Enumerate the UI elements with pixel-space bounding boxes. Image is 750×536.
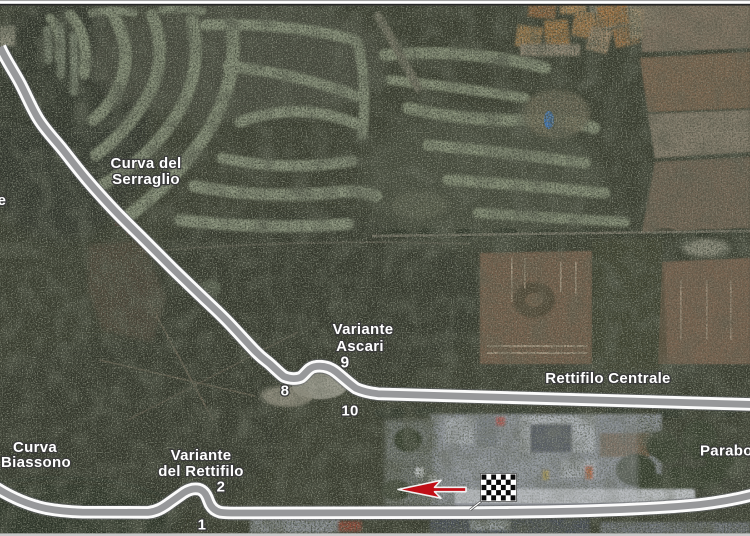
svg-text:Serraglio: Serraglio (112, 171, 180, 188)
svg-text:8: 8 (281, 383, 290, 400)
svg-text:Curva del: Curva del (110, 155, 181, 172)
svg-text:1: 1 (198, 517, 207, 534)
svg-text:del Rettifilo: del Rettifilo (158, 463, 244, 480)
svg-text:2: 2 (217, 479, 226, 496)
svg-text:Ascari: Ascari (336, 338, 384, 355)
svg-text:Biassono: Biassono (1, 454, 71, 471)
svg-text:Parabolica: Parabolica (700, 443, 750, 460)
svg-text:Variante: Variante (333, 321, 394, 338)
svg-text:Variante: Variante (171, 447, 232, 464)
svg-text:Rettifilo Centrale: Rettifilo Centrale (545, 370, 670, 387)
svg-text:10: 10 (341, 403, 358, 420)
svg-text:9: 9 (341, 355, 350, 372)
svg-text:e: e (0, 192, 6, 209)
